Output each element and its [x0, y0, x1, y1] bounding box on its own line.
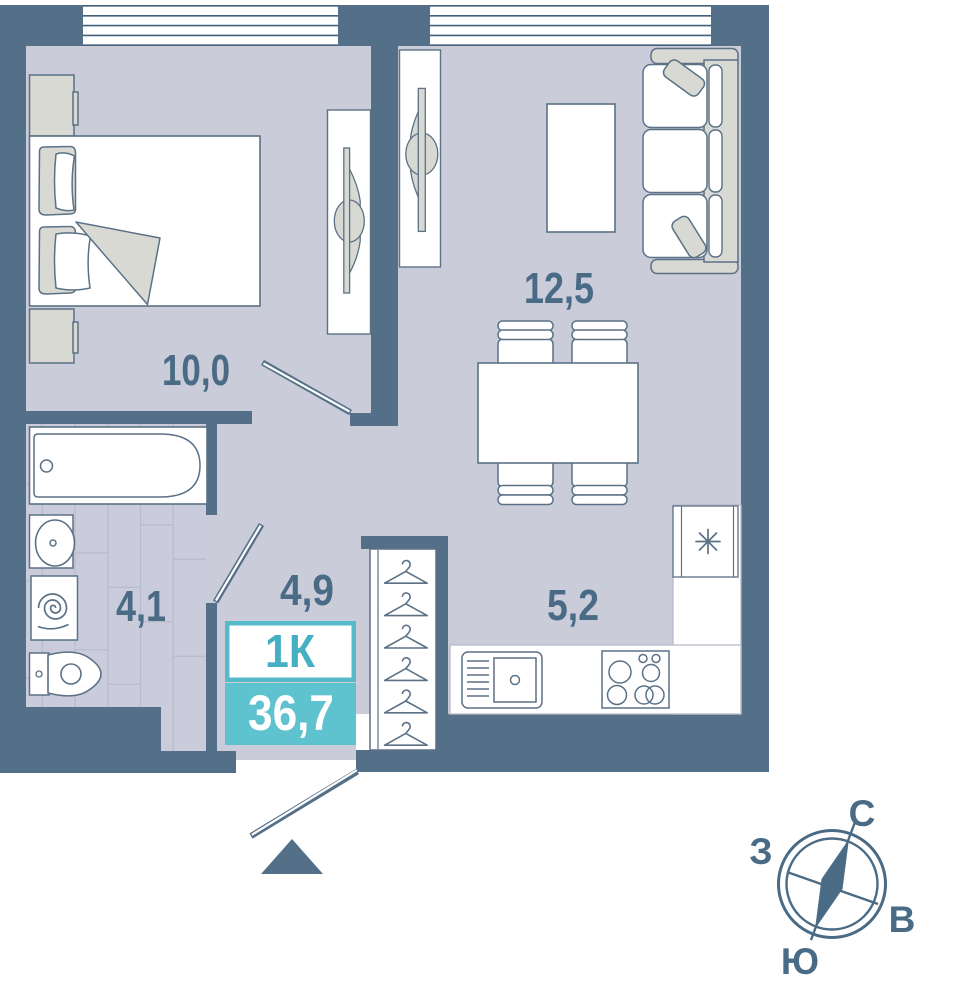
- svg-text:4,9: 4,9: [280, 566, 334, 615]
- svg-text:Ю: Ю: [781, 941, 819, 982]
- svg-text:4,1: 4,1: [116, 582, 166, 631]
- svg-text:С: С: [849, 793, 876, 834]
- svg-text:1К: 1К: [265, 625, 316, 677]
- svg-text:36,7: 36,7: [248, 685, 334, 741]
- svg-text:З: З: [749, 831, 772, 872]
- svg-text:5,2: 5,2: [547, 581, 599, 630]
- svg-text:В: В: [889, 899, 916, 940]
- svg-text:12,5: 12,5: [524, 264, 594, 313]
- svg-text:10,0: 10,0: [162, 346, 230, 395]
